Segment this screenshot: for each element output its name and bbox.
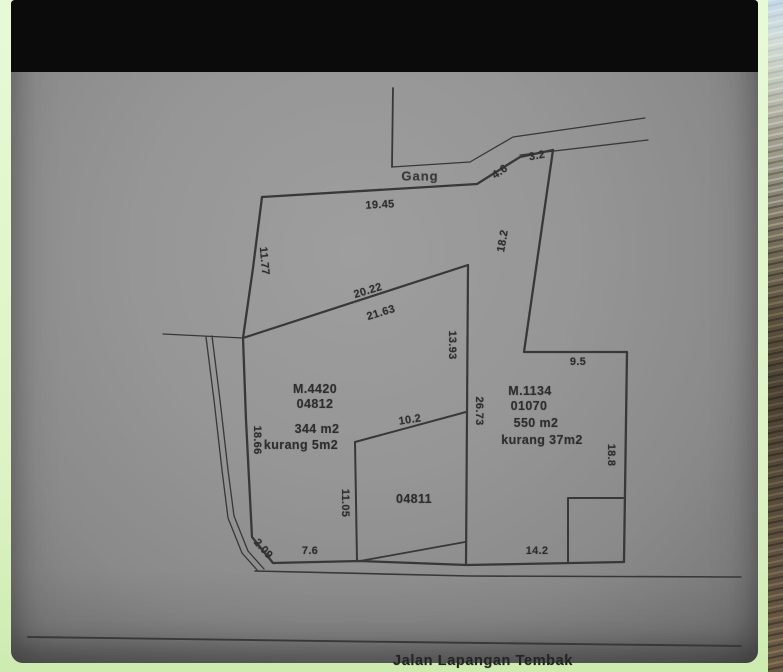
- parcel-middle-number: 04811: [396, 492, 432, 506]
- photo-top-black-bar: [11, 0, 758, 72]
- measurement-11-05: 11.05: [339, 489, 351, 517]
- measurement-9-5: 9.5: [570, 356, 586, 368]
- background-photo-sliver: [768, 0, 783, 672]
- parcel-right-number: 01070: [511, 399, 548, 413]
- parcel-left-shortage: kurang 5m2: [264, 438, 338, 452]
- screenshot-canvas: Gang Jalan Lapangan Tembak M.4420 04812 …: [0, 0, 783, 672]
- measurement-13-93: 13.93: [446, 330, 458, 359]
- parcel-left-number: 04812: [297, 397, 334, 411]
- measurement-7-6: 7.6: [302, 545, 318, 557]
- measurement-26-73: 26.73: [473, 396, 485, 425]
- parcel-right-cert: M.1134: [508, 384, 551, 398]
- survey-document-photo: [11, 0, 758, 663]
- photo-vignette: [11, 0, 758, 663]
- measurement-11-77: 11.77: [257, 246, 271, 275]
- measurement-19-45: 19.45: [365, 198, 395, 212]
- parcel-right-area: 550 m2: [514, 416, 559, 430]
- gang-label: Gang: [401, 169, 438, 184]
- parcel-right-shortage: kurang 37m2: [501, 433, 583, 447]
- parcel-left-area: 344 m2: [295, 422, 340, 436]
- bottom-road-label: Jalan Lapangan Tembak: [393, 653, 573, 669]
- measurement-18-66: 18.66: [251, 425, 263, 454]
- parcel-left-cert: M.4420: [293, 382, 337, 396]
- measurement-18-8: 18.8: [605, 444, 617, 467]
- measurement-14-2: 14.2: [526, 545, 549, 557]
